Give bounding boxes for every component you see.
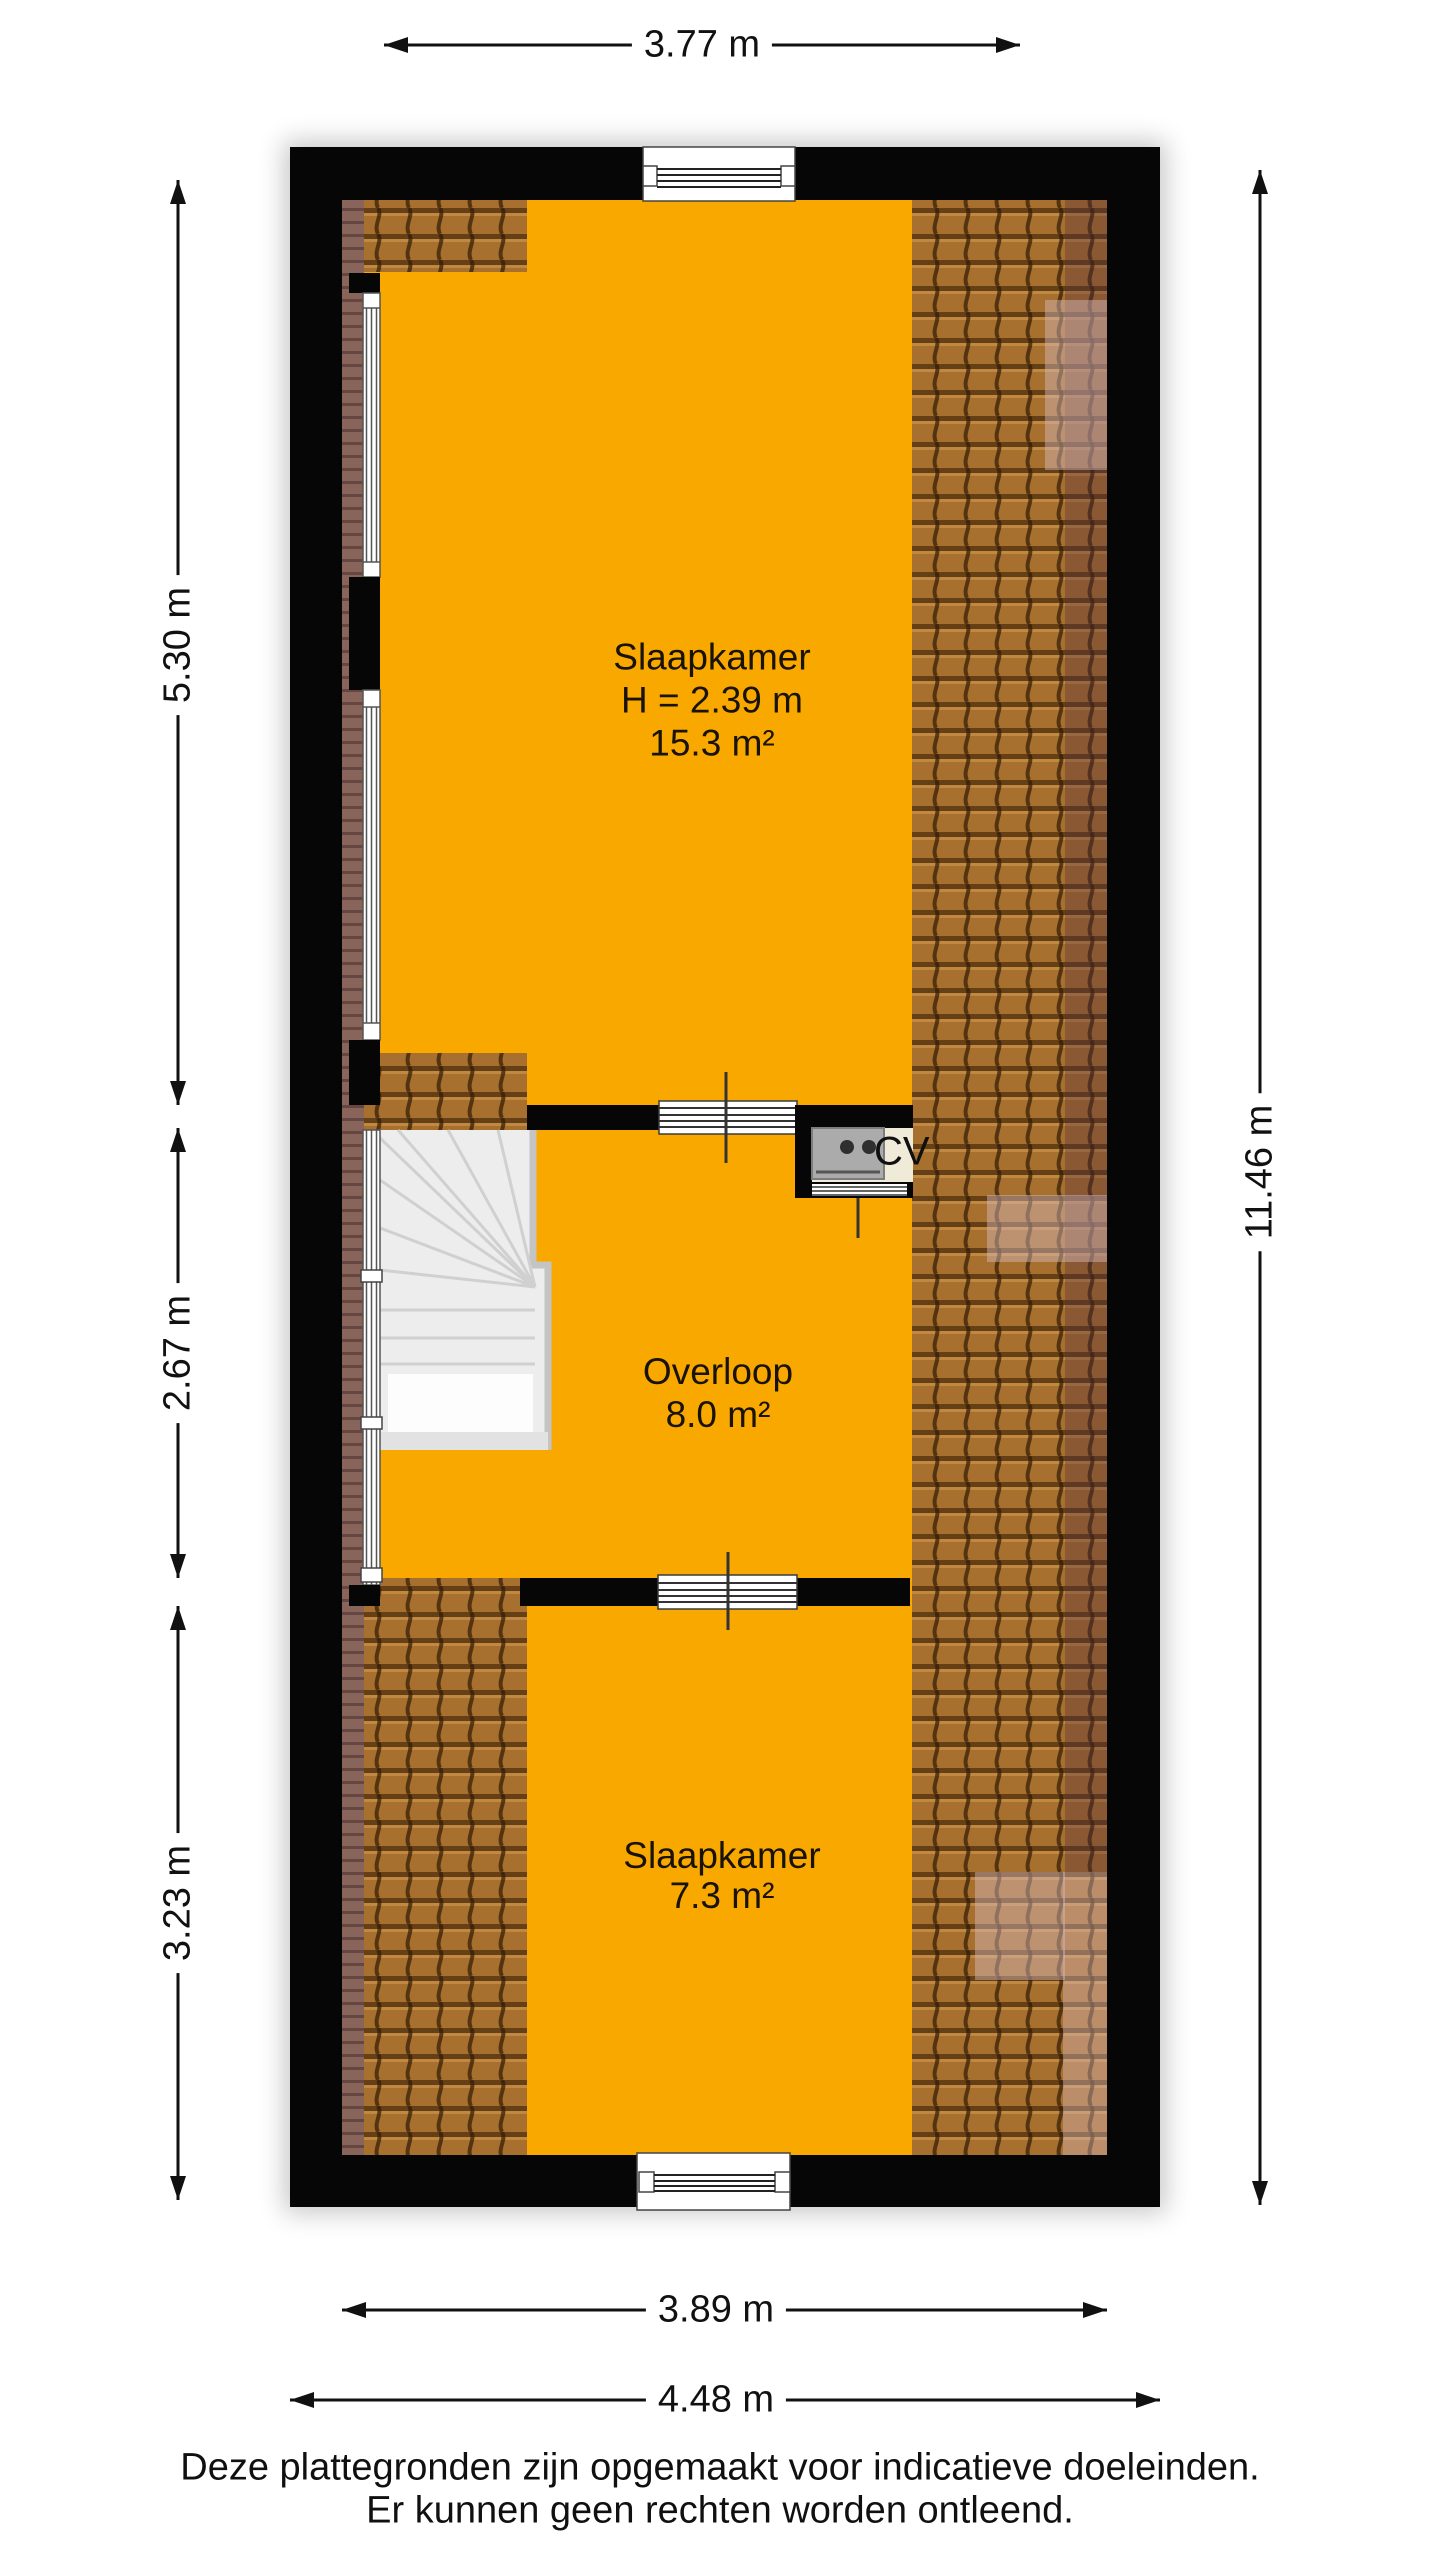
dimension-bottom-inner: 3.89 m: [646, 2289, 786, 2332]
roof-tiles-bedroom2-left: [364, 1578, 527, 2155]
tile-shade-left: [342, 200, 364, 2155]
footer-disclaimer-line-2: Er kunnen geen rechten worden ontleend.: [366, 2490, 1074, 2533]
stairs-landing: [388, 1374, 533, 1432]
top-window: [643, 147, 795, 201]
roof-tiles-bedroom1-topleft: [364, 200, 527, 272]
cv-niche-window: [812, 1184, 907, 1196]
dimension-bottom-outer: 4.48 m: [646, 2379, 786, 2422]
dimension-right: 11.46 m: [1239, 1093, 1282, 1251]
roof-tiles-bedroom1-bottomleft: [364, 1053, 527, 1130]
staircase: [380, 1130, 548, 1450]
tile-light-patch-2: [987, 1195, 1107, 1262]
dimension-left-bottom: 3.23 m: [157, 1833, 200, 1973]
room-name: Slaapkamer: [623, 1836, 820, 1876]
cv-unit-label: CV: [874, 1130, 930, 1175]
room-name: Slaapkamer: [613, 636, 810, 679]
stairs-bottom-step: [380, 1432, 548, 1450]
room-label-overloop: Overloop 8.0 m²: [643, 1350, 793, 1436]
floorplan-graphic: [0, 0, 1440, 2560]
dimension-left-middle: 2.67 m: [157, 1283, 200, 1423]
dimension-top: 3.77 m: [632, 24, 772, 67]
room-area: 8.0 m²: [643, 1393, 793, 1436]
room-label-bedroom-1: Slaapkamer H = 2.39 m 15.3 m²: [613, 636, 810, 765]
room-label-bedroom-2: Slaapkamer 7.3 m²: [623, 1836, 820, 1916]
room-name: Overloop: [643, 1350, 793, 1393]
bottom-window: [637, 2153, 790, 2210]
room-ceiling-height: H = 2.39 m: [613, 679, 810, 722]
dimension-left-top: 5.30 m: [157, 575, 200, 715]
footer-disclaimer-line-1: Deze plattegronden zijn opgemaakt voor i…: [180, 2447, 1260, 2490]
tile-light-patch-1: [1045, 300, 1107, 470]
interior-window-1: [659, 1101, 797, 1134]
tile-light-patch-3: [975, 1872, 1065, 1980]
room-area: 15.3 m²: [613, 722, 810, 765]
room-area: 7.3 m²: [623, 1876, 820, 1916]
tile-light-patch-4: [1063, 1872, 1107, 2155]
